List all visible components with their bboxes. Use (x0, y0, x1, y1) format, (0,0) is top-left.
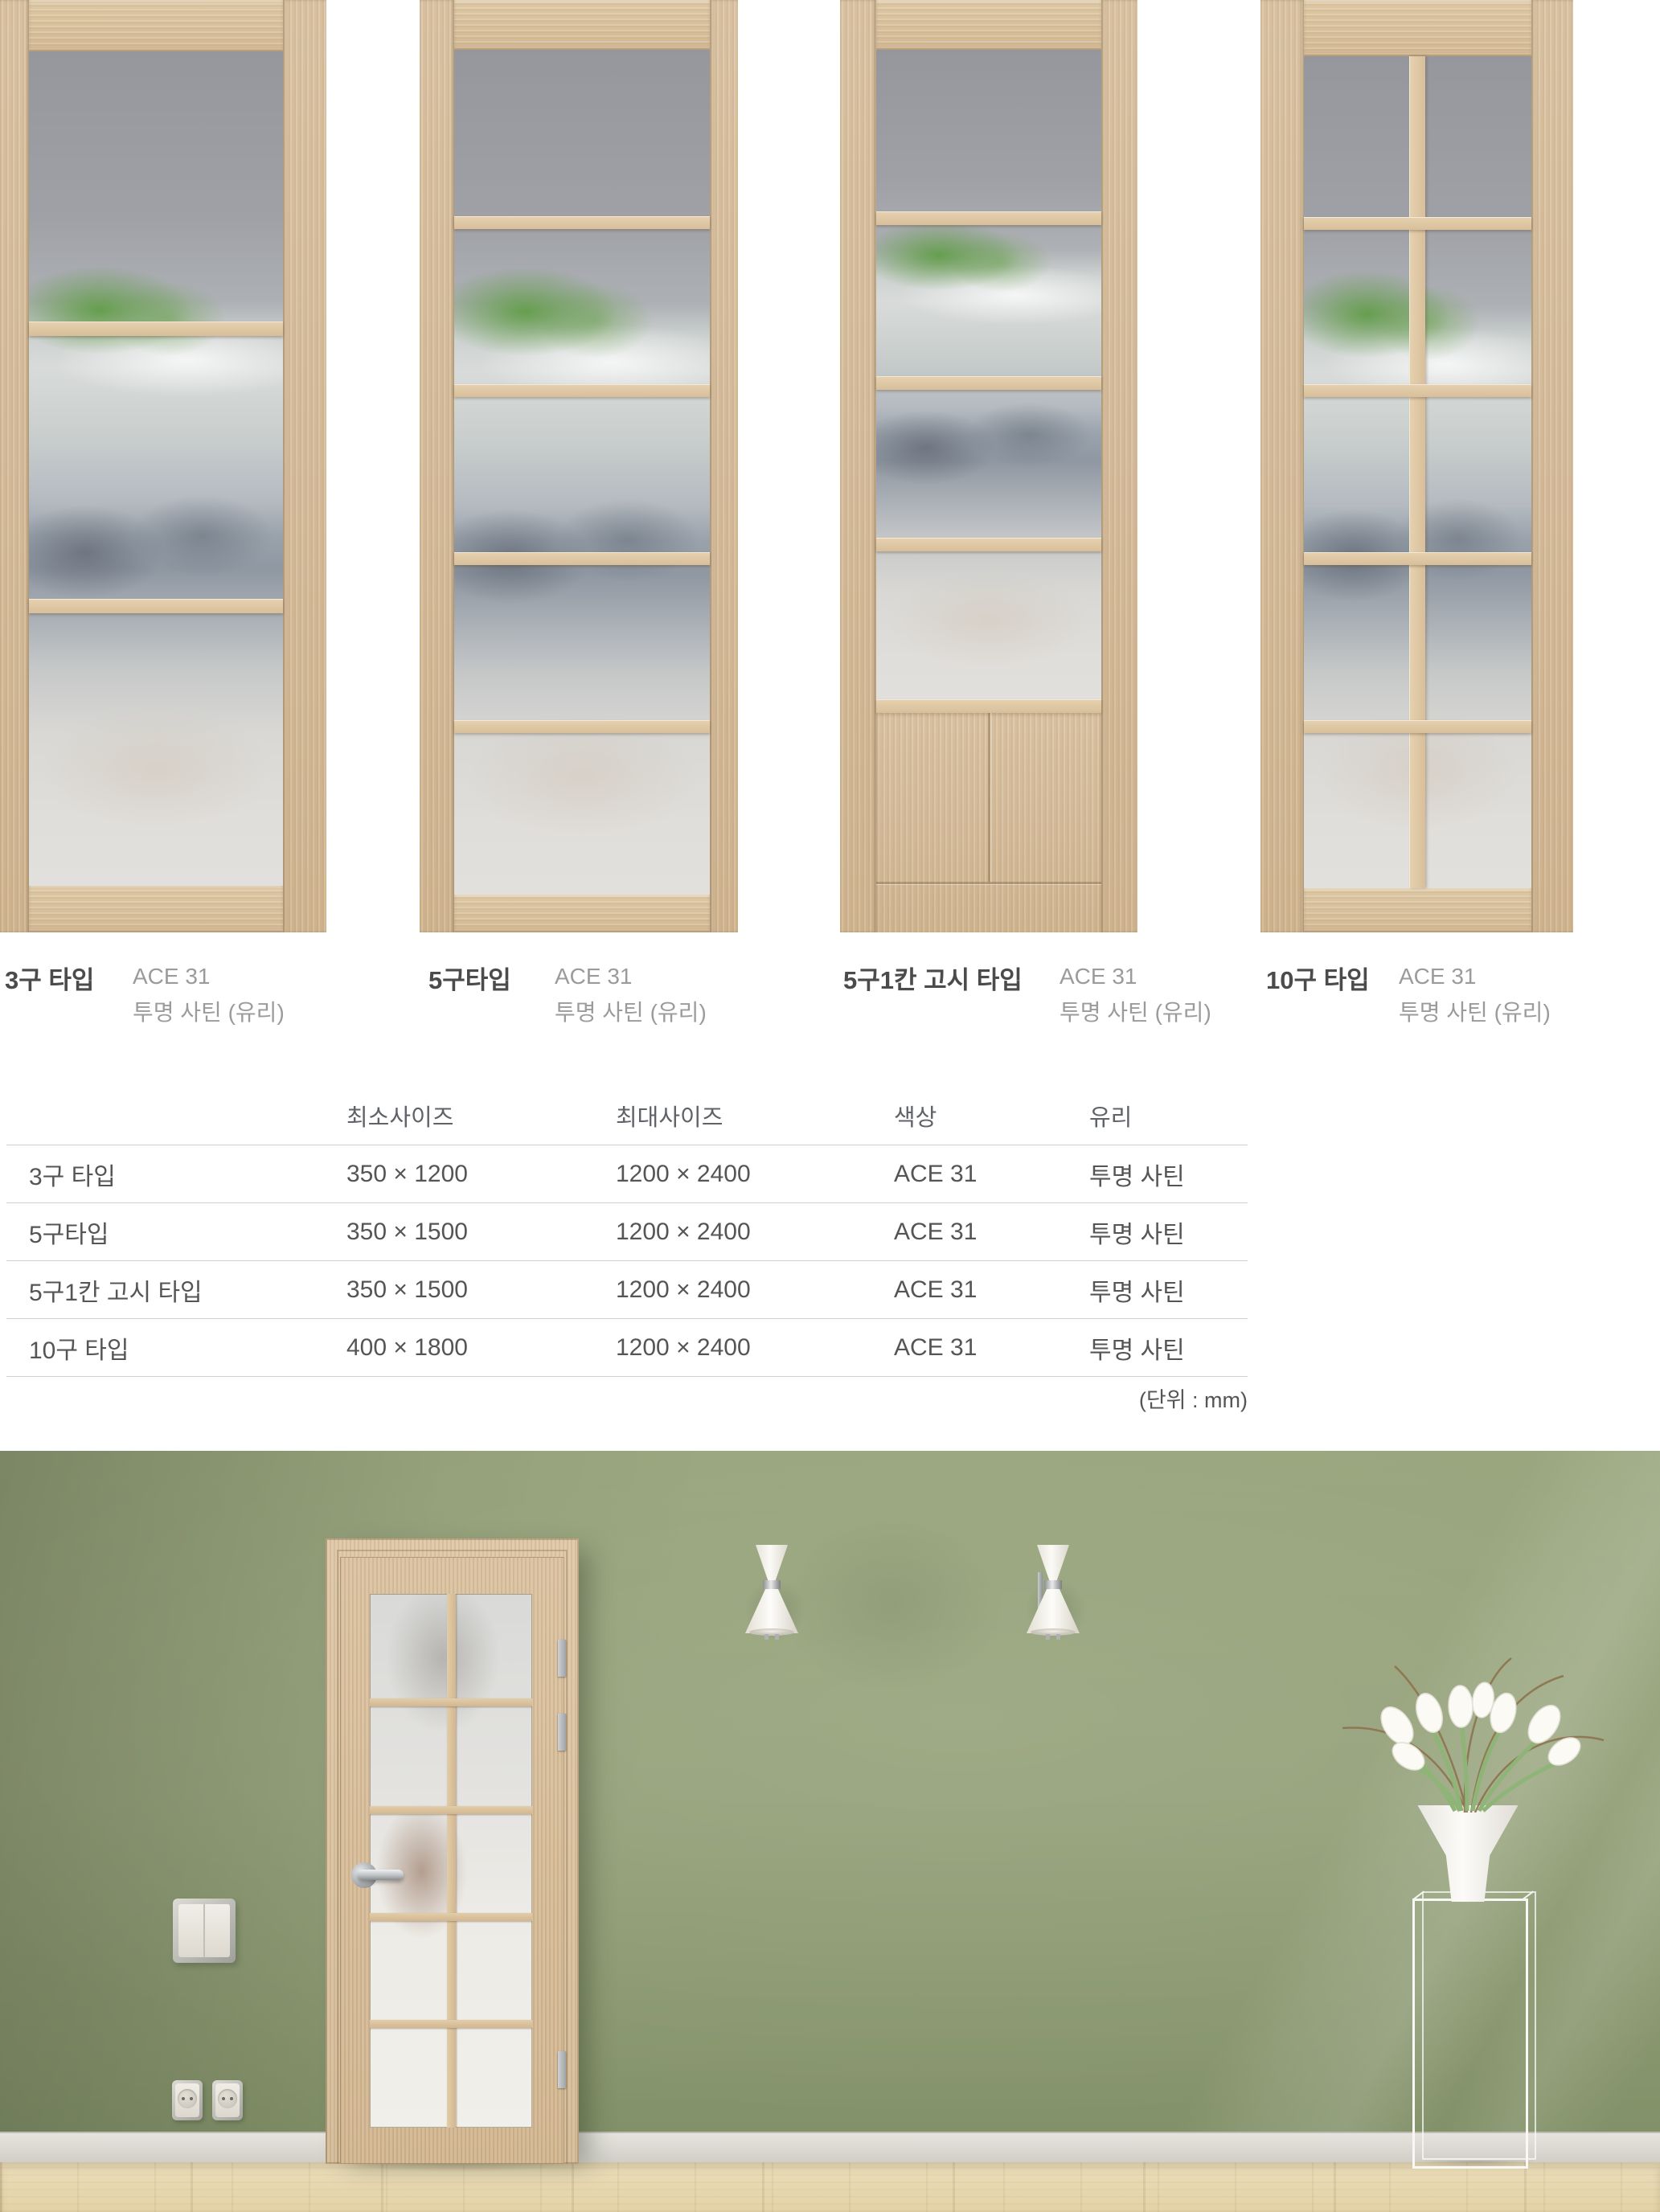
door-stile (840, 0, 876, 932)
door-sample-5pane (420, 0, 738, 932)
size-spec-table: 최소사이즈 최대사이즈 색상 유리 3구 타입 350 × 1200 1200 … (6, 1087, 1248, 1377)
door-spec-label: ACE 31 투명 사틴 (유리) (1399, 958, 1551, 1030)
door-muntin (1304, 720, 1531, 733)
sconce-feet (764, 1634, 779, 1640)
frosted-glass-scene (454, 50, 710, 895)
cell-type: 10구 타입 (6, 1330, 329, 1366)
table-row: 5구1칸 고시 타입 350 × 1500 1200 × 2400 ACE 31… (6, 1260, 1248, 1318)
door-muntin (454, 384, 710, 397)
cell-max-size: 1200 × 2400 (593, 1161, 863, 1188)
door-muntin (454, 720, 710, 733)
power-outlet (172, 2080, 203, 2120)
door-muntin (876, 211, 1101, 225)
cell-glass: 투명 사틴 (1076, 1272, 1248, 1308)
header-max-size: 최대사이즈 (593, 1099, 863, 1133)
cell-min-size: 350 × 1500 (329, 1219, 593, 1246)
cell-color: ACE 31 (863, 1219, 1076, 1246)
door-solid-panel (876, 713, 1101, 932)
door-rail-top (1304, 0, 1531, 56)
panel-seam (876, 882, 1101, 884)
cell-color: ACE 31 (863, 1161, 1076, 1188)
cell-glass: 투명 사틴 (1076, 1215, 1248, 1250)
sconce-chrome-ring (763, 1580, 781, 1589)
door-muntin (1304, 552, 1531, 565)
door-color-code: ACE 31 (555, 958, 707, 994)
cell-glass: 투명 사틴 (1076, 1330, 1248, 1366)
baseboard (0, 2132, 1660, 2164)
room-door (326, 1538, 579, 2164)
cell-min-size: 350 × 1500 (329, 1276, 593, 1304)
cell-type: 5구타입 (6, 1215, 329, 1250)
door-color-code: ACE 31 (133, 958, 285, 994)
door-stile (283, 0, 326, 932)
door-glass (29, 51, 283, 886)
door-rail-top (29, 0, 283, 51)
cell-min-size: 400 × 1800 (329, 1334, 593, 1362)
blooms-group (1375, 1681, 1585, 1776)
door-muntin (370, 1806, 532, 1814)
outlet-pin (222, 2097, 225, 2100)
door-rail-bottom (1304, 888, 1531, 932)
door-glass (454, 50, 710, 895)
door-muntin (876, 699, 1101, 713)
door-muntin-vertical (447, 1594, 456, 2128)
door-muntin (370, 2020, 532, 2028)
table-row: 10구 타입 400 × 1800 1200 × 2400 ACE 31 투명 … (6, 1318, 1248, 1377)
door-color-code: ACE 31 (1060, 958, 1211, 994)
outlet-pin (230, 2097, 233, 2100)
door-stile (420, 0, 454, 932)
cell-color: ACE 31 (863, 1276, 1076, 1304)
door-muntin (370, 1913, 532, 1921)
door-sample-5pane-panel (840, 0, 1137, 932)
frosted-glass-scene (29, 51, 283, 886)
door-hinge (558, 2051, 566, 2088)
light-switch (173, 1899, 236, 1963)
room-photo (0, 1451, 1660, 2212)
door-type-label: 10구 타입 (1266, 960, 1370, 996)
door-muntin (876, 538, 1101, 551)
cell-min-size: 350 × 1200 (329, 1161, 593, 1188)
door-hinge (558, 1640, 566, 1677)
door-type-label: 5구타입 (428, 960, 511, 996)
door-sample-3pane (0, 0, 326, 932)
door-rail-bottom (29, 886, 283, 932)
door-catalog-page: 3구 타입 ACE 31 투명 사틴 (유리) 5구타입 ACE 31 투명 사… (0, 0, 1660, 2212)
unit-note: (단위 : mm) (1139, 1382, 1248, 1414)
door-rail-top (454, 0, 710, 50)
door-hinge (558, 1714, 566, 1751)
door-type-label: 5구1칸 고시 타입 (843, 960, 1023, 996)
door-muntin (1304, 384, 1531, 397)
door-glass-type: 투명 사틴 (유리) (133, 994, 285, 1030)
outlet-pin (182, 2097, 185, 2100)
table-header-row: 최소사이즈 최대사이즈 색상 유리 (6, 1087, 1248, 1145)
door-rail-top (876, 0, 1101, 50)
sconce-feet (1046, 1634, 1060, 1640)
door-glass (370, 1594, 532, 2128)
cell-max-size: 1200 × 2400 (593, 1334, 863, 1362)
door-muntin (454, 216, 710, 229)
door-stile (0, 0, 29, 932)
twigs-group (1342, 1658, 1604, 1813)
flower-bouquet (1318, 1652, 1616, 1813)
door-muntin (29, 322, 283, 336)
door-handle-lever (358, 1870, 404, 1880)
cell-color: ACE 31 (863, 1334, 1076, 1362)
door-muntin (454, 552, 710, 565)
power-outlet (212, 2080, 243, 2120)
panel-seam (988, 713, 990, 882)
door-glass-type: 투명 사틴 (유리) (1399, 994, 1551, 1030)
header-glass: 유리 (1076, 1099, 1248, 1133)
plant-stand-front-frame (1412, 1899, 1528, 2169)
door-muntin (876, 376, 1101, 390)
outlet-recess (218, 2089, 237, 2108)
door-rail-bottom (454, 895, 710, 932)
header-min-size: 최소사이즈 (329, 1099, 593, 1133)
table-row: 3구 타입 350 × 1200 1200 × 2400 ACE 31 투명 사… (6, 1145, 1248, 1202)
door-muntin (370, 1698, 532, 1706)
cell-max-size: 1200 × 2400 (593, 1276, 863, 1304)
door-spec-label: ACE 31 투명 사틴 (유리) (1060, 958, 1211, 1030)
sconce-chrome-ring (1044, 1580, 1062, 1589)
door-stile (1531, 0, 1573, 932)
door-stile (710, 0, 738, 932)
door-spec-label: ACE 31 투명 사틴 (유리) (555, 958, 707, 1030)
door-stile (1101, 0, 1137, 932)
cell-type: 5구1칸 고시 타입 (6, 1272, 329, 1308)
door-type-label: 3구 타입 (5, 960, 94, 996)
header-color: 색상 (863, 1099, 1076, 1133)
door-color-code: ACE 31 (1399, 958, 1551, 994)
outlet-pin (190, 2097, 193, 2100)
wall-sconce-right (1027, 1545, 1080, 1640)
door-sample-10pane (1260, 0, 1573, 932)
outlet-recess (178, 2089, 197, 2108)
cell-type: 3구 타입 (6, 1157, 329, 1192)
door-stile (1260, 0, 1304, 932)
cell-glass: 투명 사틴 (1076, 1157, 1248, 1192)
door-glass-type: 투명 사틴 (유리) (555, 994, 707, 1030)
wall-sconce-left (745, 1545, 798, 1640)
door-spec-label: ACE 31 투명 사틴 (유리) (133, 958, 285, 1030)
door-glass-type: 투명 사틴 (유리) (1060, 994, 1211, 1030)
cell-max-size: 1200 × 2400 (593, 1219, 863, 1246)
door-slab (340, 1557, 564, 2164)
door-muntin-vertical (1409, 56, 1425, 888)
door-muntin (29, 599, 283, 613)
table-row: 5구타입 350 × 1500 1200 × 2400 ACE 31 투명 사틴 (6, 1202, 1248, 1260)
switch-rocker-gap (203, 1904, 205, 1957)
door-muntin (1304, 217, 1531, 230)
